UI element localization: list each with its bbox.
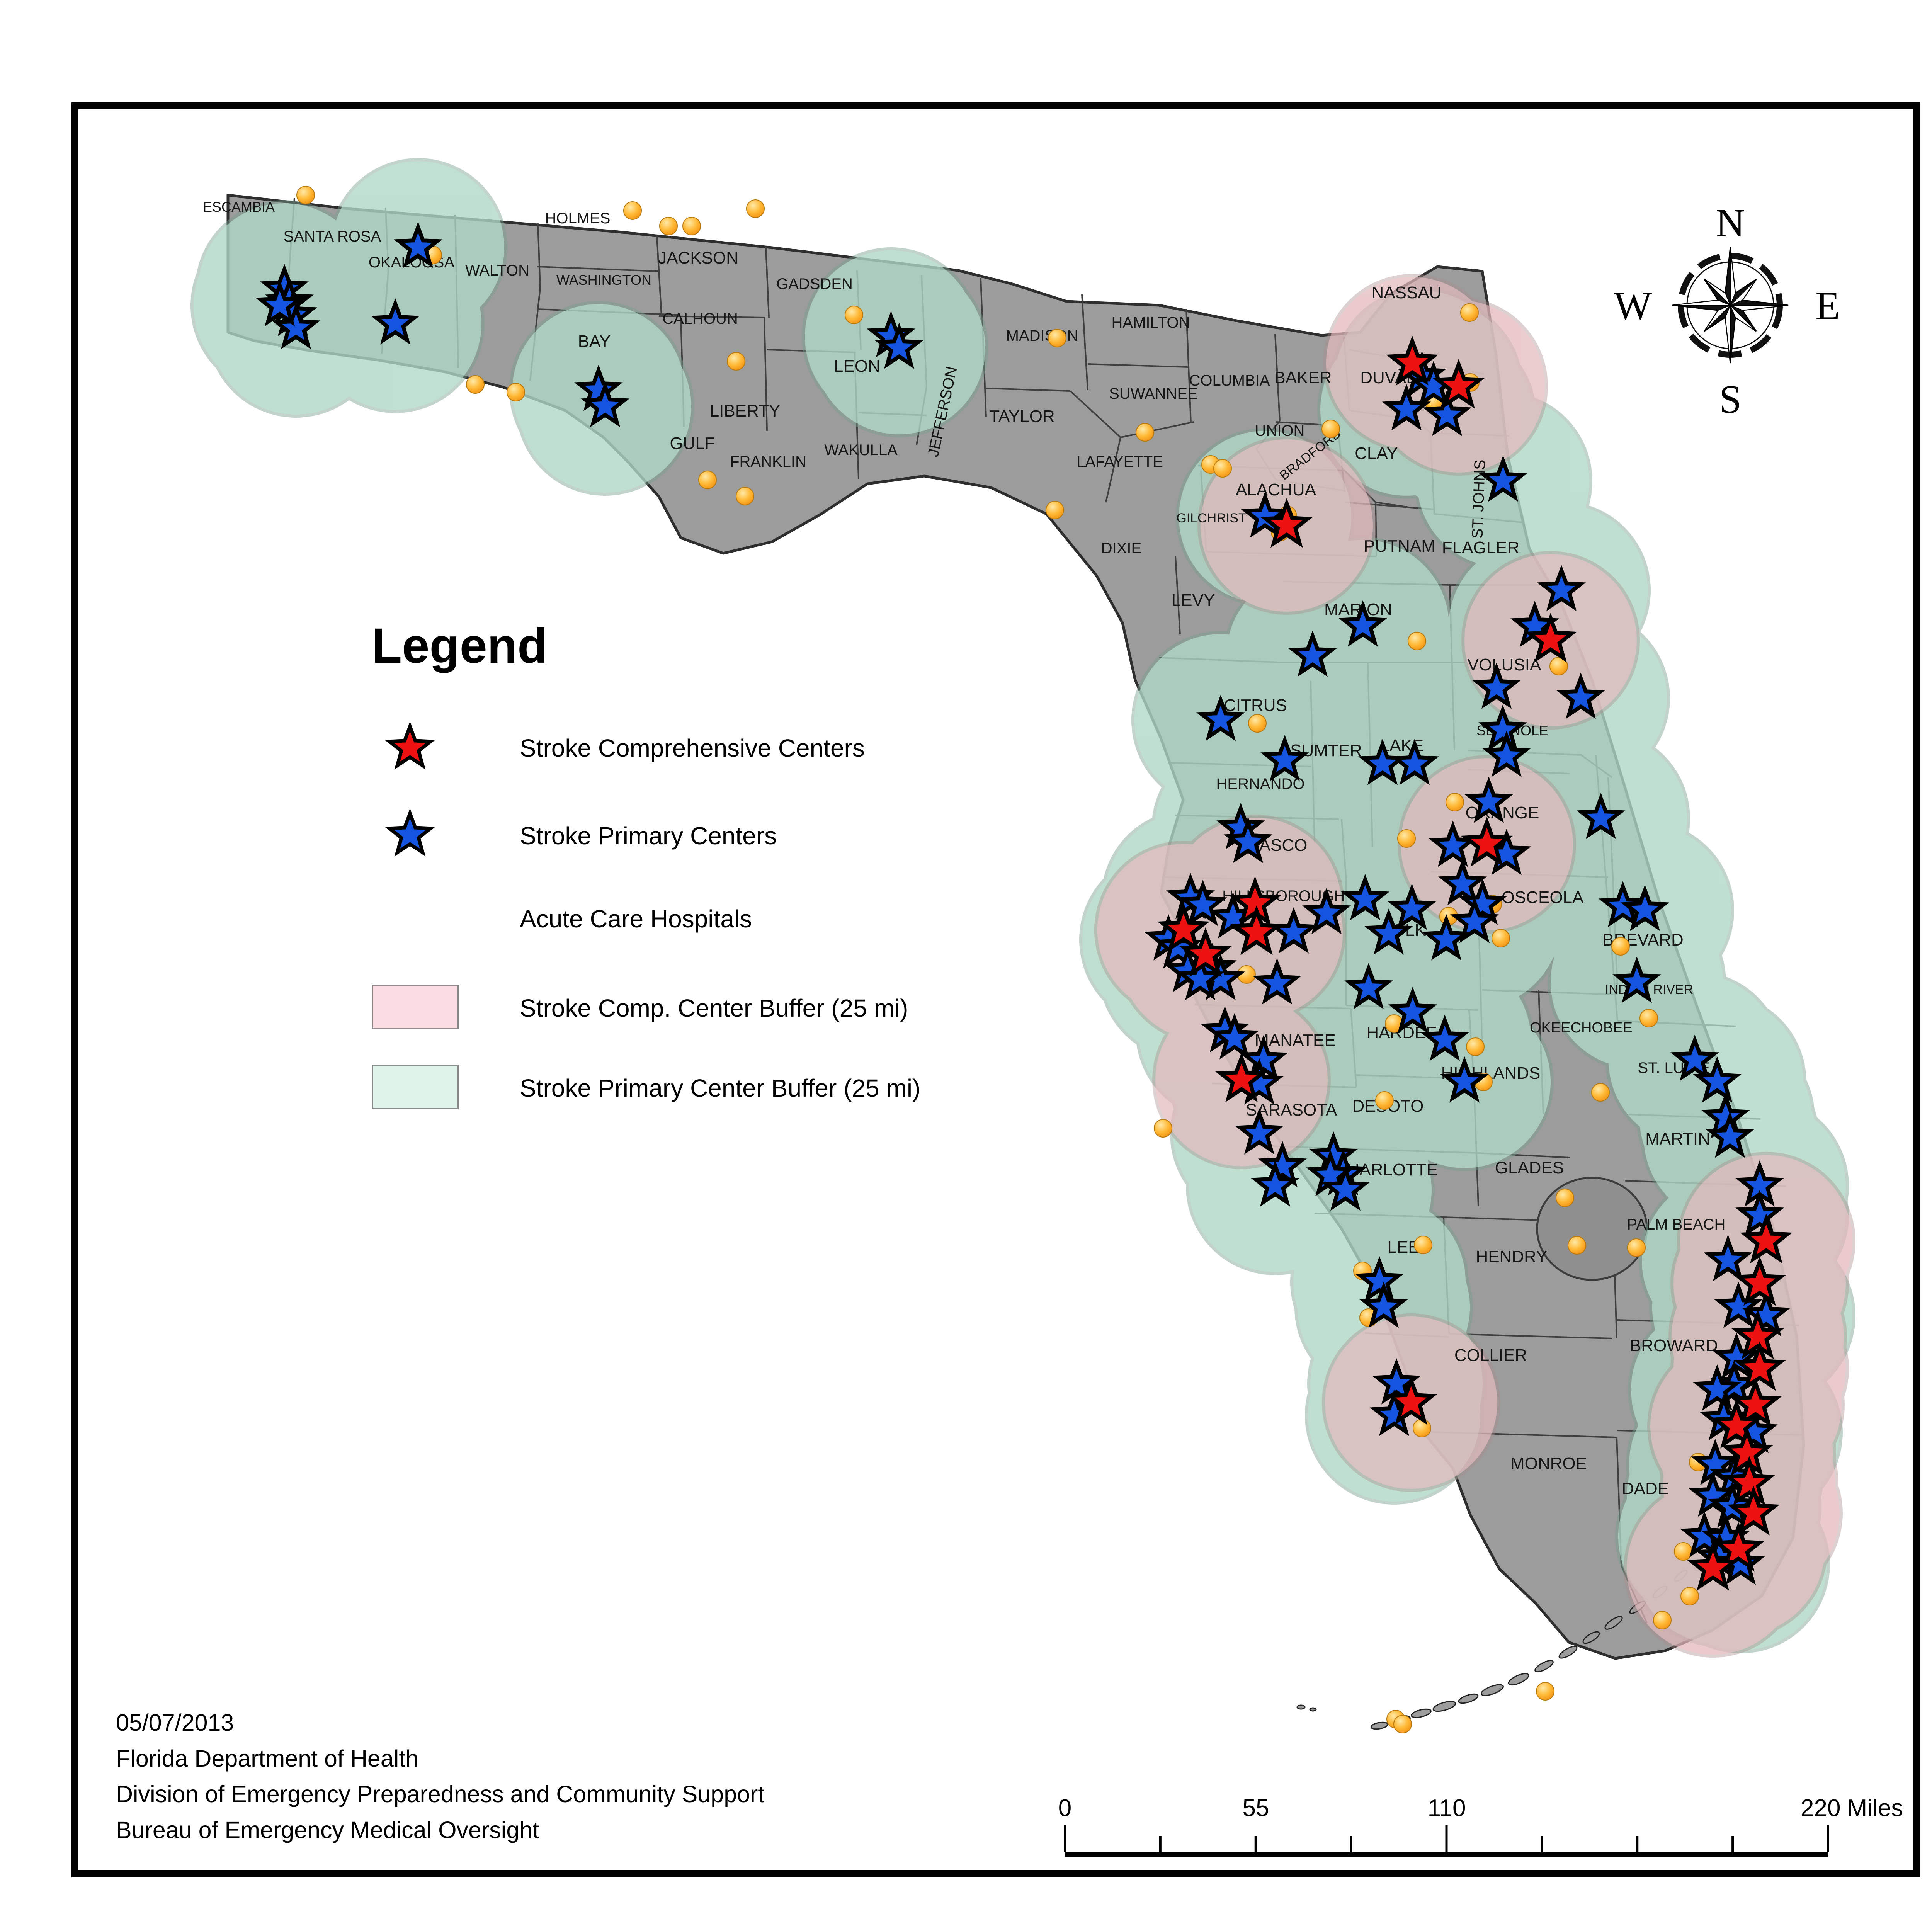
county-label: ALACHUA <box>1236 480 1316 499</box>
acute-care-hospital-dot <box>1612 937 1629 955</box>
credits-block: 05/07/2013 Florida Department of Health … <box>116 1705 764 1848</box>
compass-west-label: W <box>1614 284 1652 328</box>
credits-line2: Division of Emergency Preparedness and C… <box>116 1776 764 1812</box>
county-label: COLUMBIA <box>1189 372 1270 389</box>
county-label: HENDRY <box>1476 1247 1547 1266</box>
acute-care-hospital-dot <box>466 376 484 393</box>
comp-buffer-swatch <box>372 985 459 1029</box>
acute-care-hospital-dot <box>1214 459 1231 477</box>
acute-care-hospital-dot <box>1568 1236 1586 1254</box>
blue-star-icon <box>384 809 435 860</box>
county-label: LAFAYETTE <box>1077 453 1163 470</box>
legend-item-label: Stroke Comp. Center Buffer (25 mi) <box>520 994 908 1022</box>
scale-tick <box>1350 1836 1352 1852</box>
county-label: GULF <box>670 434 715 453</box>
scale-tick <box>1159 1836 1162 1852</box>
legend-item-label: Stroke Comprehensive Centers <box>520 734 865 762</box>
acute-care-hospital-dot <box>507 383 525 401</box>
county-label: ESCAMBIA <box>203 199 275 215</box>
credits-line3: Bureau of Emergency Medical Oversight <box>116 1812 764 1848</box>
acute-care-hospital-dot <box>736 487 754 505</box>
acute-care-hospital-dot <box>1653 1611 1671 1629</box>
scale-label-110: 110 <box>1428 1795 1466 1821</box>
legend-item-label: Stroke Primary Center Buffer (25 mi) <box>520 1074 920 1102</box>
acute-care-hospital-dot <box>845 306 863 324</box>
county-label: LIBERTY <box>710 401 781 420</box>
acute-care-hospital-dot <box>297 186 315 204</box>
county-label: OSCEOLA <box>1502 888 1584 907</box>
scale-tick <box>1255 1836 1257 1852</box>
acute-care-hospital-dot <box>1408 632 1426 650</box>
acute-care-hospital-dot <box>1466 1038 1484 1056</box>
county-label: HERNANDO <box>1216 776 1305 793</box>
acute-care-hospital-dot <box>1154 1119 1172 1137</box>
county-label: GLADES <box>1495 1158 1564 1177</box>
county-label: WALTON <box>465 262 529 279</box>
scale-ticks <box>1064 1825 1829 1852</box>
county-label: SANTA ROSA <box>284 228 381 245</box>
acute-care-hospital-dot <box>1592 1083 1609 1101</box>
scale-label-0: 0 <box>1058 1795 1071 1821</box>
acute-care-hospital-dot <box>1640 1009 1658 1027</box>
county-label: CALHOUN <box>662 310 738 327</box>
county-label: ST. JOHNS <box>1469 459 1488 539</box>
compass-north-label: N <box>1716 201 1745 245</box>
red-star-icon <box>384 722 435 773</box>
county-label: LEON <box>834 357 880 376</box>
acute-care-hospital-dot <box>1556 1189 1574 1207</box>
county-label: DIXIE <box>1101 540 1141 557</box>
compass-rose: N S W E <box>1614 201 1840 422</box>
scale-label-55: 55 <box>1243 1795 1269 1821</box>
acute-care-hospital-dot <box>1248 714 1266 732</box>
county-label: LEVY <box>1172 591 1215 610</box>
acute-care-hospital-dot <box>1394 1715 1412 1733</box>
county-label: FLAGLER <box>1442 538 1520 557</box>
acute-care-hospital-dot <box>624 202 641 219</box>
scale-tick <box>1446 1825 1448 1852</box>
acute-care-hospital-dot <box>1414 1236 1432 1254</box>
scale-tick <box>1827 1825 1829 1852</box>
county-label: WASHINGTON <box>556 272 651 288</box>
acute-care-hospital-dot <box>660 217 677 235</box>
credits-date: 05/07/2013 <box>116 1705 764 1741</box>
county-label: BAY <box>578 332 611 351</box>
acute-care-hospital-dot <box>1446 793 1464 811</box>
county-label: COLLIER <box>1454 1346 1527 1365</box>
acute-care-hospital-dot <box>1681 1587 1699 1605</box>
acute-care-hospital-dot <box>699 471 716 489</box>
scale-tick <box>1541 1836 1543 1852</box>
county-label: TAYLOR <box>989 407 1055 426</box>
credits-line1: Florida Department of Health <box>116 1741 764 1777</box>
acute-care-hospital-dot <box>747 200 764 218</box>
county-label: DADE <box>1622 1479 1669 1498</box>
acute-care-hospital-dot <box>1492 929 1510 947</box>
county-label: BROWARD <box>1630 1336 1718 1355</box>
county-label: GADSDEN <box>776 276 853 293</box>
scale-tick <box>1064 1825 1066 1852</box>
county-label: NASSAU <box>1372 283 1442 302</box>
county-label: MADISON <box>1006 327 1078 344</box>
county-label: OKEECHOBEE <box>1530 1020 1633 1036</box>
county-label: VOLUSIA <box>1468 655 1541 674</box>
acute-care-hospital-dot <box>1046 501 1064 519</box>
county-label: BAKER <box>1274 368 1332 387</box>
county-label: SUWANNEE <box>1109 385 1198 402</box>
florida-map: ESCAMBIASANTA ROSAOKALOOSAWALTONHOLMESWA… <box>0 0 1932 1932</box>
acute-care-hospital-dot <box>1461 304 1478 321</box>
scale-tick <box>1731 1836 1734 1852</box>
county-label: JACKSON <box>658 248 738 267</box>
county-label: PUTNAM <box>1364 537 1435 556</box>
legend-title: Legend <box>372 617 548 674</box>
county-label: WAKULLA <box>824 442 898 459</box>
legend-item-label: Stroke Primary Centers <box>520 821 777 850</box>
acute-care-hospital-dot <box>1398 830 1415 847</box>
scale-bar: 0 55 110 220 Miles <box>1058 1795 1903 1857</box>
county-label: PALM BEACH <box>1627 1216 1726 1233</box>
county-label: UNION <box>1255 422 1305 439</box>
compass-south-label: S <box>1719 377 1742 422</box>
county-label: MONROE <box>1510 1454 1587 1473</box>
county-label: MARTIN <box>1645 1129 1710 1148</box>
legend-item-label: Acute Care Hospitals <box>520 905 752 933</box>
primary-buffer-swatch <box>372 1065 459 1109</box>
county-label: HAMILTON <box>1112 314 1190 331</box>
scale-tick <box>1636 1836 1638 1852</box>
acute-care-hospital-dot <box>1413 1419 1431 1437</box>
acute-care-hospital-dot <box>1322 420 1340 438</box>
acute-care-hospital-dot <box>1536 1682 1554 1700</box>
acute-care-hospital-dot <box>1376 1092 1393 1109</box>
county-label: CLAY <box>1355 444 1398 463</box>
county-label: FRANKLIN <box>730 453 806 470</box>
acute-care-hospital-dot <box>1674 1543 1692 1560</box>
county-label: HOLMES <box>545 210 611 227</box>
acute-care-hospital-dot <box>727 352 745 370</box>
county-label: GILCHRIST <box>1176 511 1246 526</box>
acute-care-hospital-dot <box>1048 329 1066 347</box>
acute-care-hospital-dot <box>1136 423 1154 441</box>
scale-label-220: 220 Miles <box>1801 1795 1903 1821</box>
acute-care-hospital-dot <box>1628 1239 1645 1257</box>
compass-east-label: E <box>1815 284 1840 328</box>
acute-care-hospital-dot <box>683 217 701 235</box>
